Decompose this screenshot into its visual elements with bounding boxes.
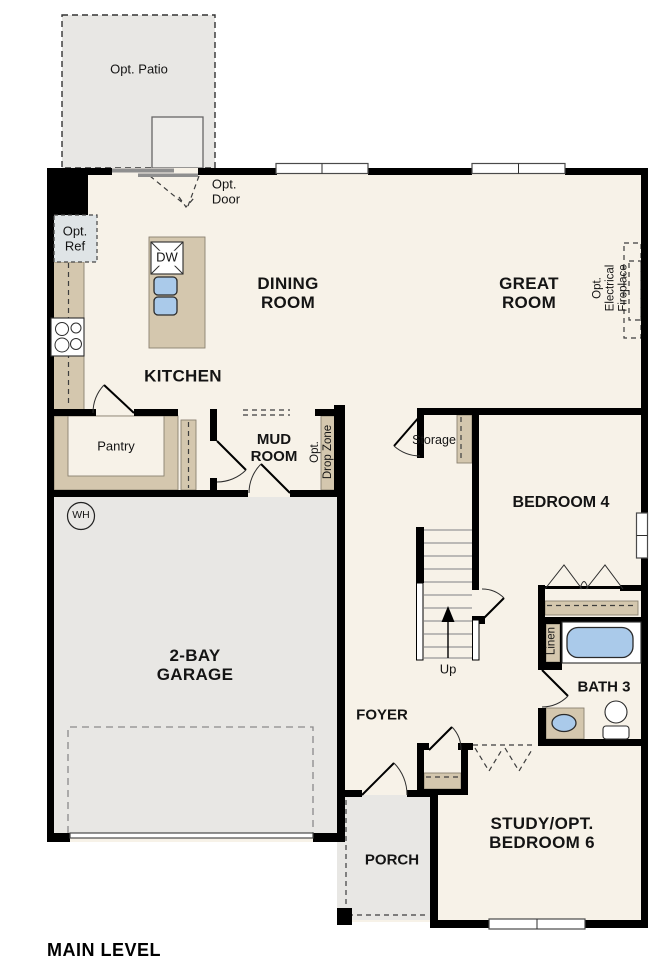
label-linen: Linen [546, 627, 559, 655]
label-bath3: BATH 3 [577, 680, 630, 697]
stair-rail [417, 583, 424, 660]
kitchen-sink-basin [154, 277, 177, 295]
label-study: STUDY/OPT. BEDROOM 6 [489, 814, 595, 852]
patio-step [152, 117, 203, 168]
wall-stub [538, 662, 562, 670]
closet-shelf [545, 601, 638, 615]
wall-study-west [430, 790, 438, 928]
label-porch: PORCH [365, 853, 419, 870]
closet-front-line [545, 586, 622, 589]
wall-garage-bottom [47, 833, 70, 842]
wall-kitchen [54, 409, 96, 416]
label-opt-drop-zone: Opt. Drop Zone [309, 425, 335, 479]
label-opt-fireplace: Opt. Electrical Fireplace [592, 262, 631, 315]
plan-title: MAIN LEVEL [47, 940, 161, 960]
toilet-tank [603, 726, 629, 739]
label-foyer: FOYER [356, 708, 408, 725]
label-bedroom4: BEDROOM 4 [513, 494, 610, 512]
wall-segment [198, 168, 277, 175]
wall-left [47, 168, 54, 842]
outdoor-areas [62, 15, 215, 168]
label-opt-door: Opt. Door [212, 177, 240, 206]
wall-closet-right-stub [620, 585, 641, 591]
wall-study-closet [417, 743, 424, 795]
wall-greatroom-south [417, 408, 648, 415]
label-pantry: Pantry [97, 440, 135, 455]
storage-shelf [457, 415, 472, 463]
label-opt-ref: Opt. Ref [63, 224, 88, 253]
wall-foyer-south [337, 790, 362, 797]
kitchen-sink-basin [154, 297, 177, 315]
wall-kitchen [134, 409, 178, 416]
label-opt-patio: Opt. Patio [110, 63, 168, 78]
label-dining-room: DINING ROOM [257, 274, 318, 312]
sliding-door-panel [112, 169, 174, 173]
sliding-door-panel [138, 174, 198, 178]
toilet-bowl [605, 701, 627, 723]
label-dishwasher: DW [153, 251, 181, 266]
label-kitchen: KITCHEN [144, 366, 222, 385]
label-up: Up [440, 663, 457, 678]
wall-study-closet [461, 743, 468, 795]
wall-bedroom4-west [472, 408, 479, 590]
label-mud-room: MUD ROOM [251, 432, 298, 466]
floor-plan: Opt. Patio Opt. Door Opt. Ref DW DINING … [0, 0, 664, 966]
stair-rail [473, 620, 480, 660]
wall-segment [565, 168, 648, 175]
label-storage: Storage [412, 433, 456, 447]
garage-door [70, 833, 313, 838]
bathtub [567, 628, 633, 658]
wall-stair-left [416, 527, 424, 583]
study-closet-shelf [424, 773, 461, 789]
label-great-room: GREAT ROOM [499, 274, 559, 312]
label-water-heater: WH [72, 510, 90, 522]
wall-garage-top [54, 490, 248, 497]
wall-mudroom-right [334, 405, 345, 497]
wall-mudroom-left [210, 409, 217, 441]
wall-porch-stub [337, 908, 352, 925]
wall-bath-south [538, 739, 648, 746]
vanity-sink [552, 715, 576, 732]
wall-segment [368, 168, 472, 175]
label-garage: 2-BAY GARAGE [157, 646, 233, 684]
